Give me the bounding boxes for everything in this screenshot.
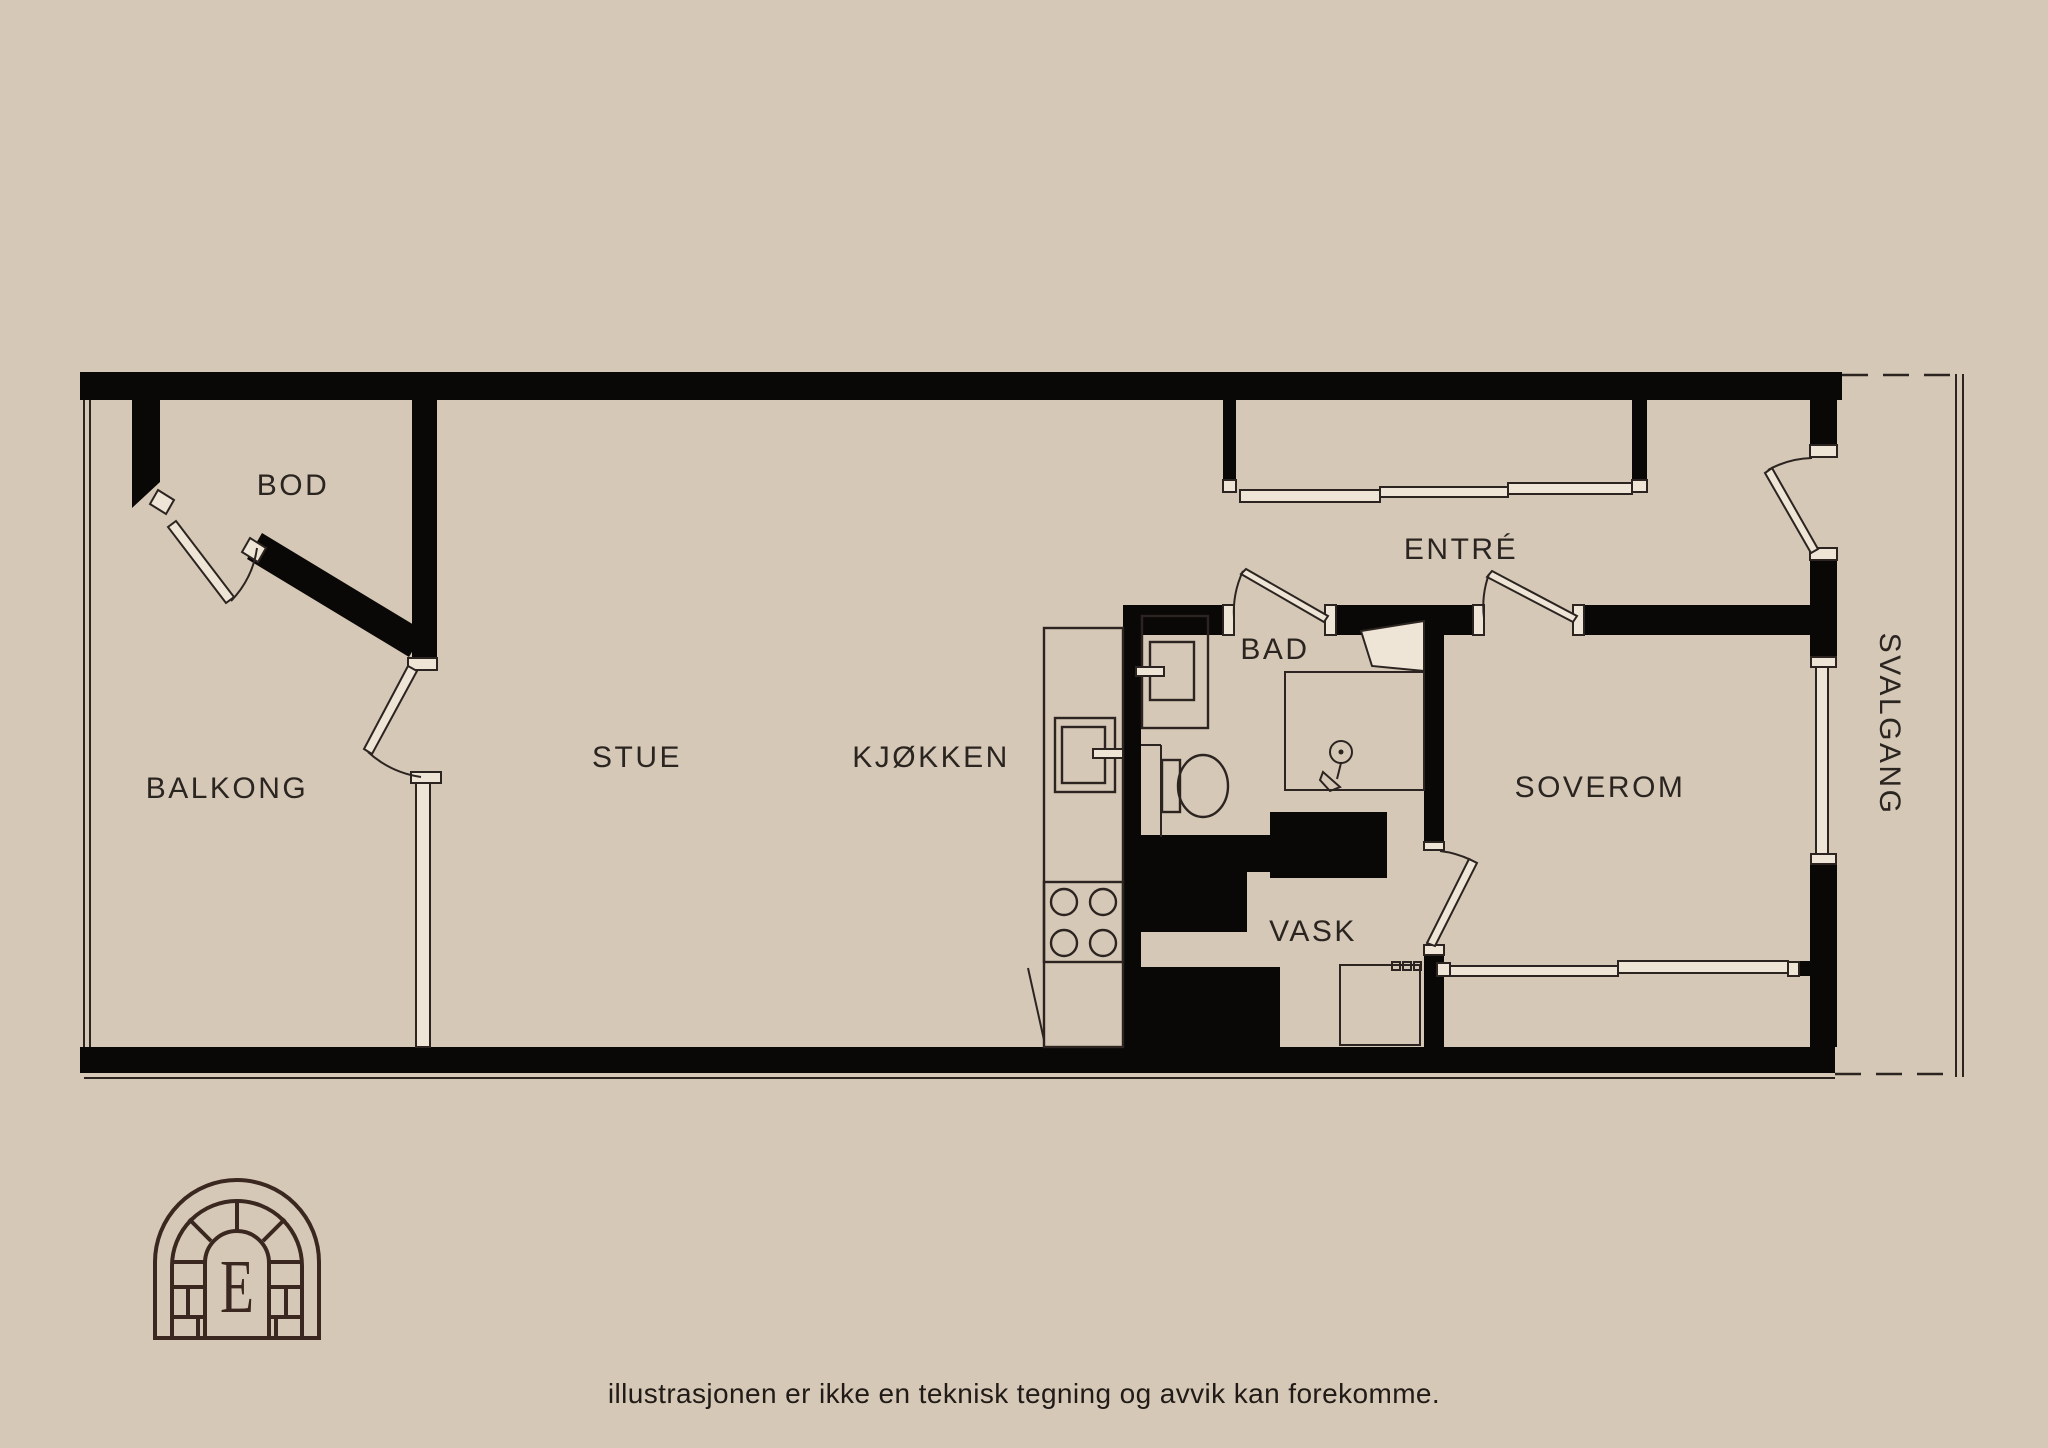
entry-window-mid (1380, 487, 1508, 497)
logo-right-panes (269, 1262, 302, 1338)
wall-stue-west (412, 400, 437, 658)
room-label-kjokken: KJØKKEN (852, 741, 1010, 774)
laundry-fixtures (1340, 962, 1421, 1045)
shaft-block-4 (1141, 967, 1280, 1047)
logo-fan-mullions (189, 1201, 285, 1241)
room-label-svalgang: SVALGANG (1873, 633, 1906, 816)
counter-end-line (1028, 968, 1044, 1040)
kitchen-counter (1044, 628, 1123, 1047)
soverom-door-arc (1483, 574, 1489, 618)
entrance-door-leaf (1765, 468, 1818, 553)
wall-right-mid (1810, 560, 1837, 667)
bay-stub-left (1223, 400, 1236, 480)
bad-door-leaf (1241, 569, 1328, 622)
kitchen-sink-icon (1055, 718, 1123, 792)
toilet-icon (1141, 745, 1228, 837)
east-window (1816, 667, 1828, 854)
bay-pad-left (1223, 480, 1236, 492)
disclaimer-text: illustrasjonen er ikke en teknisk tegnin… (0, 1378, 2048, 1410)
room-labels: BOD BALKONG STUE KJØKKEN BAD ENTRÉ VASK … (146, 469, 1906, 948)
kitchen-fixtures (1028, 628, 1123, 1047)
shaft-block-3 (1141, 872, 1247, 932)
agency-logo: E (155, 1180, 319, 1338)
svalgang-right-line (1956, 374, 1963, 1077)
bad-door-arc (1234, 571, 1243, 618)
bad-door-pad-right (1325, 605, 1336, 635)
wall-soverom-west-upper (1424, 635, 1444, 842)
entrance-door-pad-top (1810, 445, 1837, 457)
logo-left-panes (172, 1262, 205, 1338)
soverom-door-leaf (1487, 571, 1577, 622)
bod-door-pad-wall (150, 490, 174, 514)
balcony-window-cap (411, 772, 441, 783)
entrance-door-arc (1768, 458, 1812, 470)
balcony-rail-line (84, 400, 90, 1047)
south-window-pad-right (1788, 962, 1799, 976)
balcony-door-leaf (364, 666, 417, 754)
wall-top (80, 372, 1842, 400)
floor-plan-stage: BOD BALKONG STUE KJØKKEN BAD ENTRÉ VASK … (0, 0, 2048, 1448)
balcony-window (416, 783, 430, 1047)
washing-machine-icon (1340, 965, 1420, 1045)
window-spacer (1799, 961, 1810, 976)
vask-door-pad-top (1424, 842, 1444, 850)
logo-letter: E (220, 1245, 254, 1329)
floor-plan-drawing: BOD BALKONG STUE KJØKKEN BAD ENTRÉ VASK … (0, 0, 2048, 1448)
room-label-balkong: BALKONG (146, 772, 309, 805)
stove-icon (1044, 882, 1123, 962)
bay-stub-right (1632, 400, 1647, 480)
east-window-pad-top (1811, 657, 1836, 667)
room-label-stue: STUE (592, 741, 682, 774)
room-label-soverom: SOVEROM (1515, 771, 1686, 804)
bad-door-pad-left (1223, 605, 1234, 635)
room-label-bod: BOD (257, 469, 330, 502)
south-window-left (1450, 966, 1618, 976)
shower-head-icon (1320, 741, 1352, 791)
entry-window-left (1240, 490, 1380, 502)
wall-bod-west (132, 400, 160, 508)
room-label-entre: ENTRÉ (1404, 533, 1518, 566)
doors (150, 445, 1837, 955)
vask-door-leaf (1427, 859, 1477, 946)
wall-bod-diagonal (247, 533, 424, 657)
wall-bottom (80, 1047, 1835, 1073)
shaft-block-2 (1270, 812, 1387, 878)
south-window-right (1618, 961, 1788, 973)
shower-screen (1361, 621, 1424, 671)
wall-entre-south-3 (1584, 605, 1810, 635)
room-label-vask: VASK (1269, 915, 1357, 948)
east-window-pad-bottom (1811, 854, 1836, 864)
entry-window-right (1508, 483, 1632, 494)
room-label-bad: BAD (1240, 633, 1309, 666)
shaft-block-1 (1141, 835, 1270, 872)
bay-pad-right (1632, 480, 1647, 492)
wall-right-lower (1810, 857, 1837, 1047)
bod-door-leaf (168, 521, 234, 603)
shower-zone (1285, 672, 1424, 790)
south-window-pad-left (1437, 963, 1450, 976)
wall-entre-south-1 (1141, 605, 1223, 635)
vask-door-arc (1440, 851, 1471, 860)
